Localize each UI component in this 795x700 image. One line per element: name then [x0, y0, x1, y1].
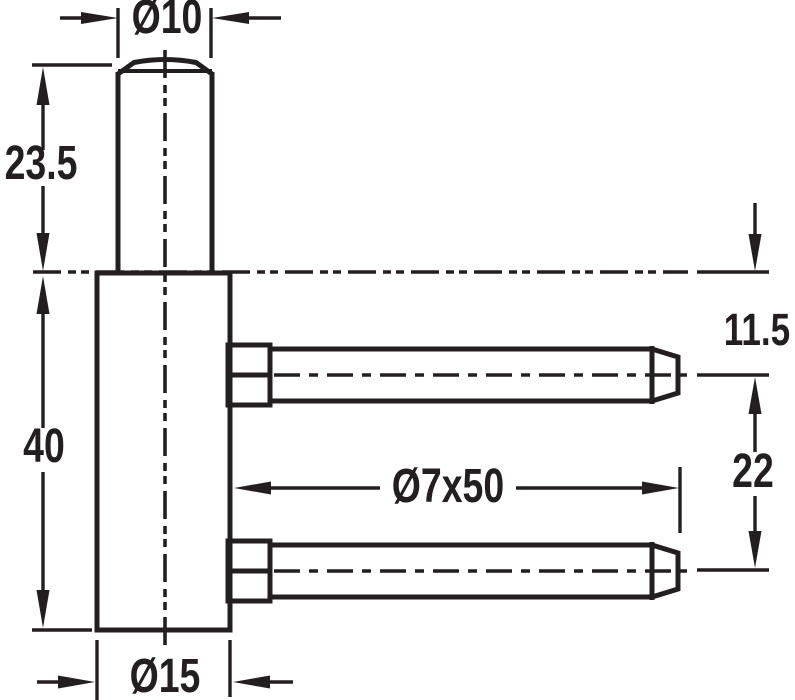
drawing-canvas: Ø10 23.5 40 Ø15 Ø7x50 11.5 22 — [0, 0, 795, 700]
dim235-arrow-up-icon — [37, 67, 50, 105]
dia10-arrow-right-icon — [81, 12, 118, 24]
label-screw-dimension: Ø7x50 — [392, 463, 504, 511]
label-top-to-first-screw: 11.5 — [724, 307, 790, 352]
dim40-arrow-down-icon — [37, 590, 50, 628]
dim40-arrow-up-icon — [37, 276, 50, 314]
label-pin-length: 23.5 — [5, 140, 78, 188]
label-pin-diameter: Ø10 — [132, 0, 203, 42]
label-screw-spacing: 22 — [732, 448, 774, 496]
dia15-arrow-left-icon — [233, 676, 270, 689]
dim115-arrow-down-icon — [749, 234, 762, 271]
dim22-arrow-up-icon — [749, 377, 762, 414]
dia10-arrow-left-icon — [212, 12, 249, 24]
dim22-arrow-down-icon — [749, 531, 762, 568]
dia15-arrow-right-icon — [58, 676, 95, 689]
hinge-drawing — [0, 0, 795, 700]
screwdim-arrow-left-icon — [234, 482, 271, 495]
dim235-arrow-down-icon — [37, 233, 50, 271]
screwdim-arrow-right-icon — [642, 482, 679, 495]
label-body-length: 40 — [23, 423, 65, 471]
label-body-diameter: Ø15 — [130, 653, 201, 700]
